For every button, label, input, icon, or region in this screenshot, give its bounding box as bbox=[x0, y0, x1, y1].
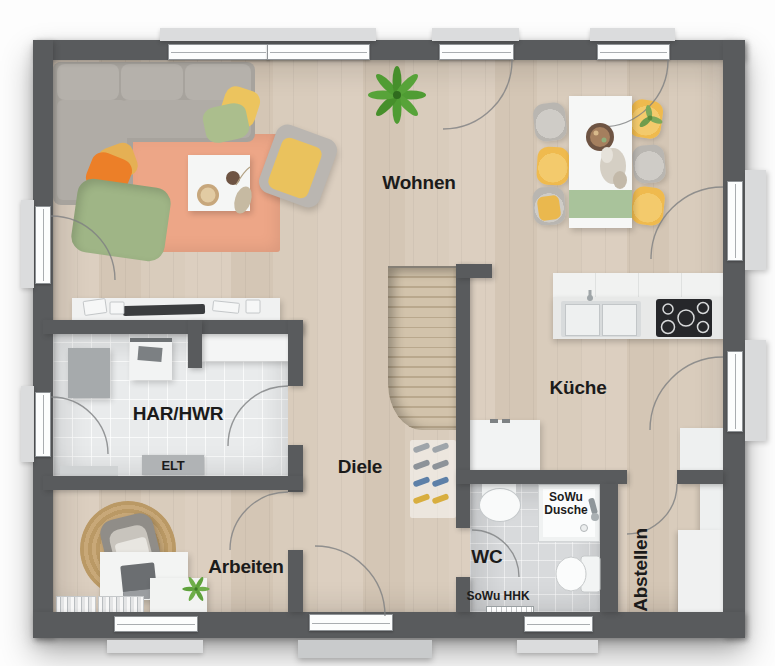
sink-basin bbox=[565, 304, 600, 336]
coffee-table bbox=[188, 155, 250, 211]
wc-sink bbox=[479, 488, 521, 522]
book-row bbox=[98, 596, 144, 613]
kitchen-upper-cabinets bbox=[553, 273, 725, 297]
sofa-cushion bbox=[121, 64, 183, 100]
wall-diele-west bbox=[288, 550, 303, 612]
wall-har-arbeiten bbox=[43, 476, 303, 490]
entrance-door bbox=[309, 614, 393, 631]
window bbox=[267, 44, 370, 60]
window bbox=[439, 44, 514, 60]
washing-machine bbox=[68, 348, 110, 398]
storage-shelf bbox=[678, 530, 723, 612]
wall-kueche-south bbox=[456, 470, 627, 484]
terrace-door bbox=[727, 181, 743, 261]
cabinet-handle bbox=[490, 419, 498, 423]
room-label-arbeiten: Arbeiten bbox=[208, 556, 283, 578]
book-row bbox=[56, 596, 96, 613]
room-label-abstellen: Abstellen bbox=[630, 528, 652, 612]
room-label-kueche: Küche bbox=[549, 377, 606, 399]
wall-har-stub bbox=[188, 320, 202, 368]
cabinet-handle bbox=[502, 419, 510, 423]
room-label-diele: Diele bbox=[338, 456, 382, 478]
annotation-sowu-dusche-line2: Dusche bbox=[544, 504, 587, 517]
blanket-green bbox=[69, 177, 172, 263]
wall-outer-left bbox=[33, 40, 53, 638]
wall-stairs-stub bbox=[456, 264, 492, 278]
door-surround bbox=[745, 170, 766, 270]
dining-chair-yellow bbox=[630, 185, 666, 226]
wall-stairs-east bbox=[456, 264, 470, 528]
dining-chair-yellow bbox=[536, 146, 570, 186]
floor-plan: Wohnen Küche HAR/HWR Diele Arbeiten WC A… bbox=[0, 0, 775, 666]
window-sill bbox=[21, 386, 34, 462]
wall-kueche-south bbox=[677, 470, 723, 484]
annotation-elt: ELT bbox=[162, 458, 185, 473]
room-label-wohnen: Wohnen bbox=[382, 172, 455, 194]
window bbox=[114, 616, 198, 632]
sink-basin bbox=[602, 304, 637, 336]
table-runner bbox=[569, 190, 632, 218]
annotation-sowu-hhk: SoWu HHK bbox=[466, 590, 529, 603]
kitchen-cabinet bbox=[470, 420, 540, 470]
dining-chair-gray bbox=[631, 144, 666, 185]
side-table bbox=[150, 578, 207, 612]
window bbox=[35, 206, 51, 284]
wall-diele-west bbox=[288, 320, 303, 386]
room-label-har-hwr: HAR/HWR bbox=[133, 403, 223, 425]
shoe-rack bbox=[410, 440, 456, 518]
dining-chair-gray bbox=[532, 101, 568, 142]
window-sill bbox=[590, 28, 675, 41]
cooktop bbox=[656, 299, 712, 337]
window-sill bbox=[517, 640, 598, 653]
wall-wohnen-har bbox=[43, 320, 303, 334]
dining-chair-yellow bbox=[628, 98, 665, 140]
chair-throw-yellow bbox=[536, 195, 561, 222]
room-label-wc: WC bbox=[471, 546, 502, 568]
window-sill bbox=[160, 28, 376, 41]
storage-shelf bbox=[700, 484, 723, 530]
window bbox=[35, 392, 51, 457]
terrace-door bbox=[727, 351, 743, 432]
window bbox=[597, 44, 670, 60]
entrance-step bbox=[298, 640, 432, 658]
sofa-cushion bbox=[57, 64, 119, 100]
door-surround bbox=[745, 340, 766, 441]
utility-shelf bbox=[202, 334, 288, 361]
window bbox=[524, 616, 593, 632]
staircase bbox=[388, 266, 456, 430]
wall-outer-right bbox=[723, 40, 745, 638]
window-sill bbox=[21, 200, 34, 288]
window bbox=[168, 44, 269, 60]
window-sill bbox=[107, 640, 203, 653]
window-sill bbox=[432, 28, 519, 41]
laundry-item bbox=[137, 346, 162, 362]
wall-wc-abstellen bbox=[600, 484, 618, 612]
kitchen-tall-cabinet bbox=[680, 428, 723, 470]
